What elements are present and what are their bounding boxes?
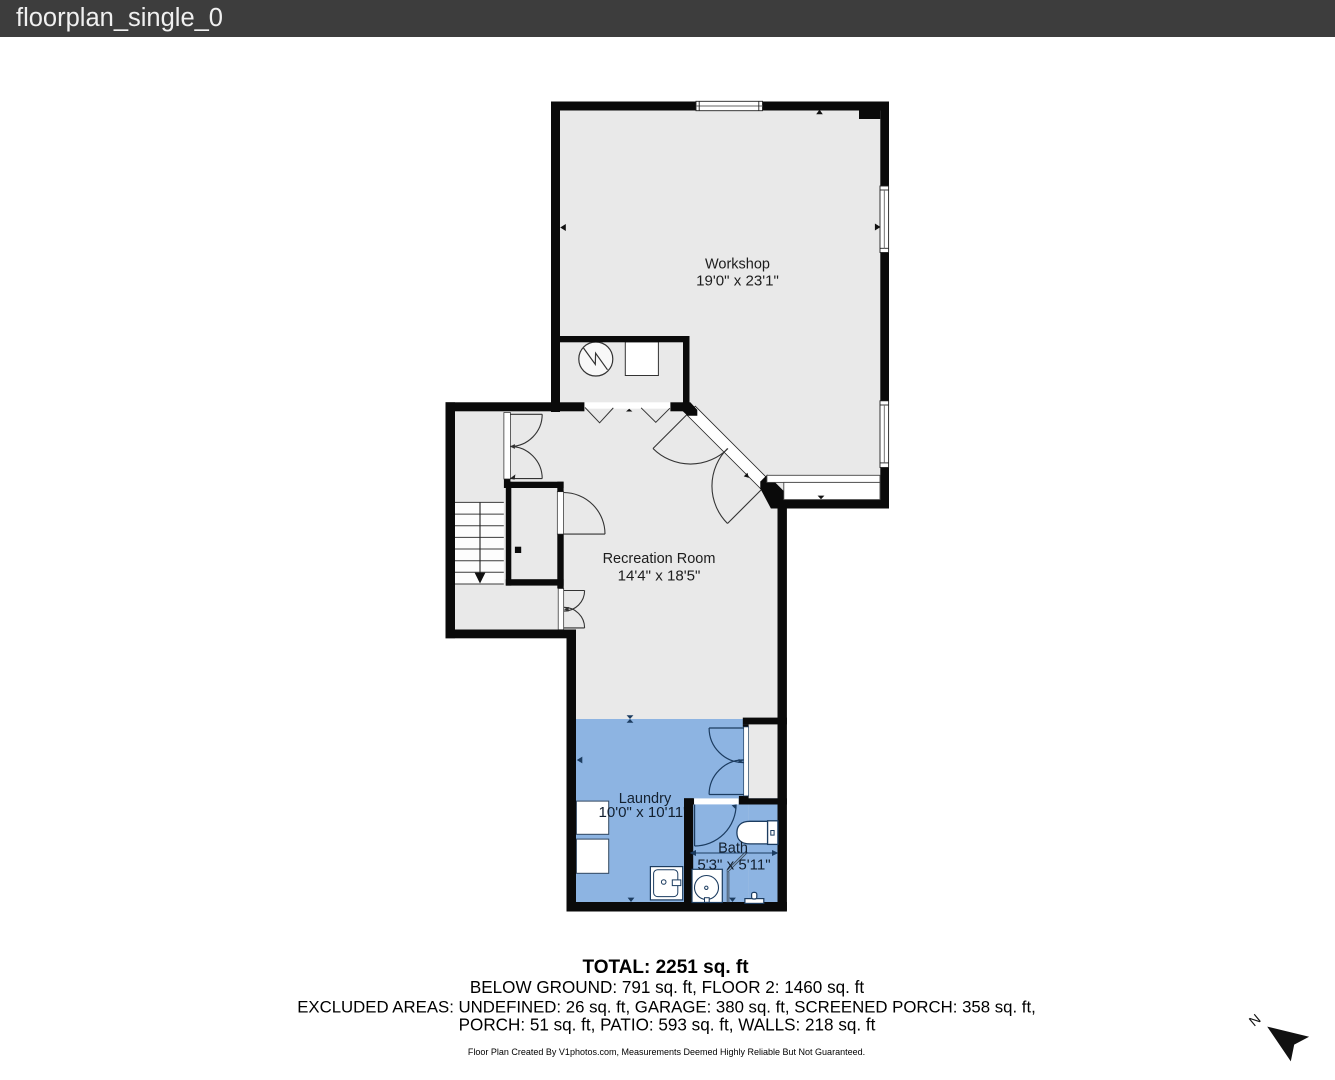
svg-text:TOTAL: 2251 sq. ft: TOTAL: 2251 sq. ft	[582, 957, 749, 978]
svg-text:EXCLUDED AREAS: UNDEFINED: 26: EXCLUDED AREAS: UNDEFINED: 26 sq. ft, GA…	[297, 998, 1036, 1017]
svg-text:5'3" x 5'11": 5'3" x 5'11"	[697, 857, 770, 874]
svg-text:19'0" x 23'1": 19'0" x 23'1"	[696, 273, 779, 290]
svg-text:10'0" x 10'11": 10'0" x 10'11"	[598, 804, 688, 821]
svg-text:Recreation Room: Recreation Room	[603, 551, 716, 567]
svg-text:14'4" x 18'5": 14'4" x 18'5"	[618, 568, 701, 585]
svg-text:Floor Plan Created By V1photos: Floor Plan Created By V1photos.com, Meas…	[468, 1047, 865, 1057]
svg-text:Bath: Bath	[718, 841, 748, 857]
svg-text:PORCH: 51 sq. ft, PATIO: 593 s: PORCH: 51 sq. ft, PATIO: 593 sq. ft, WAL…	[459, 1016, 876, 1035]
svg-text:BELOW GROUND: 791 sq. ft, FLOO: BELOW GROUND: 791 sq. ft, FLOOR 2: 1460 …	[470, 978, 864, 997]
svg-text:Workshop: Workshop	[705, 257, 770, 273]
svg-text:N: N	[1246, 1011, 1264, 1030]
